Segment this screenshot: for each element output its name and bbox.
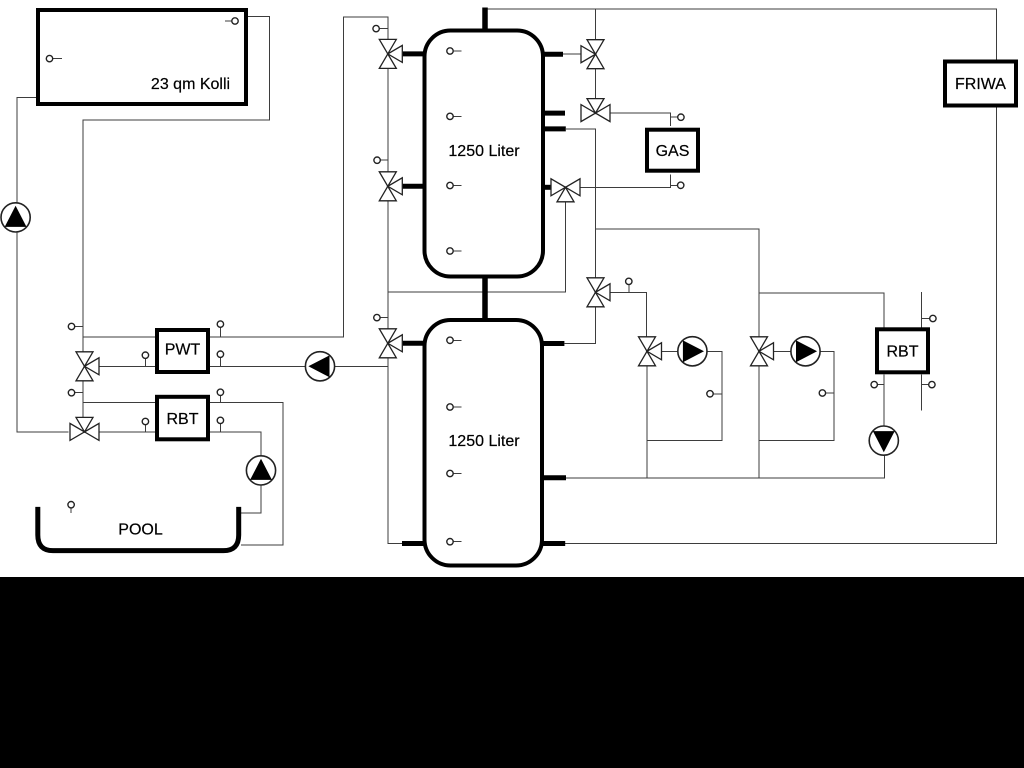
svg-text:PWT: PWT xyxy=(165,342,201,359)
svg-text:23 qm Kolli: 23 qm Kolli xyxy=(151,76,230,93)
svg-text:1250 Liter: 1250 Liter xyxy=(448,143,520,160)
svg-text:POOL: POOL xyxy=(118,522,163,539)
svg-text:FRIWA: FRIWA xyxy=(955,76,1006,93)
svg-text:RBT: RBT xyxy=(887,344,919,361)
svg-text:RBT: RBT xyxy=(167,411,199,428)
svg-text:1250 Liter: 1250 Liter xyxy=(448,433,520,450)
svg-text:GAS: GAS xyxy=(656,143,690,160)
